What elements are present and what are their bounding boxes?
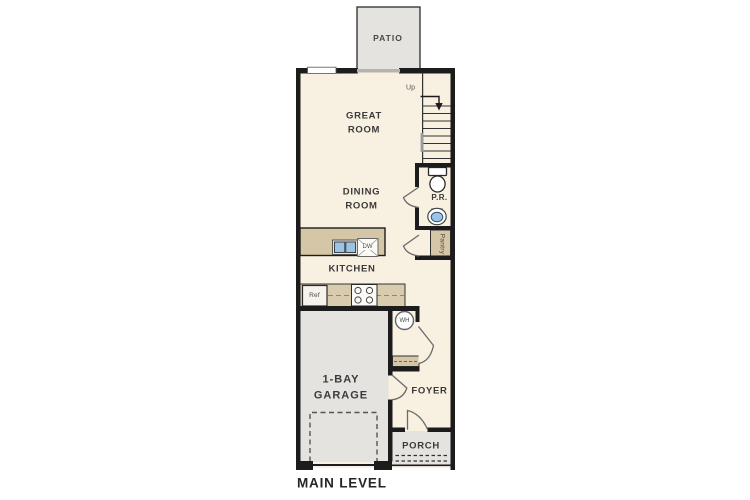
powder-room-sink <box>428 208 446 224</box>
garage-label-1: 1-BAY <box>323 375 360 386</box>
stairs-up-label: Up <box>406 84 415 91</box>
garage-floor <box>301 311 389 462</box>
floor-plan-drawing <box>0 0 750 500</box>
toilet <box>429 168 447 193</box>
great-room-label-2: ROOM <box>348 125 380 135</box>
dining-room-label-2: ROOM <box>345 201 377 211</box>
patio-label: PATIO <box>373 34 403 43</box>
floor-plan-page: PATIO GREAT ROOM Up DINING ROOM P.R. Pan… <box>0 0 750 500</box>
refrigerator-label: Ref <box>309 292 320 299</box>
stove <box>352 285 378 307</box>
pantry-label: Pantry <box>438 233 445 254</box>
porch-label: PORCH <box>402 441 440 451</box>
sliding-door <box>357 69 400 73</box>
closet-shelf <box>393 356 420 367</box>
powder-room-label: P.R. <box>431 194 447 202</box>
stair-railing <box>421 133 424 152</box>
water-heater-label: WH <box>400 318 410 324</box>
window <box>308 67 337 73</box>
dining-room-label-1: DINING <box>343 187 380 197</box>
kitchen-label: KITCHEN <box>328 264 375 274</box>
level-title: MAIN LEVEL <box>297 476 387 490</box>
dishwasher-label: DW <box>362 244 374 250</box>
island-sink <box>333 240 358 255</box>
garage-label-2: GARAGE <box>314 391 368 402</box>
foyer-label: FOYER <box>411 386 447 396</box>
great-room-label-1: GREAT <box>346 111 382 121</box>
